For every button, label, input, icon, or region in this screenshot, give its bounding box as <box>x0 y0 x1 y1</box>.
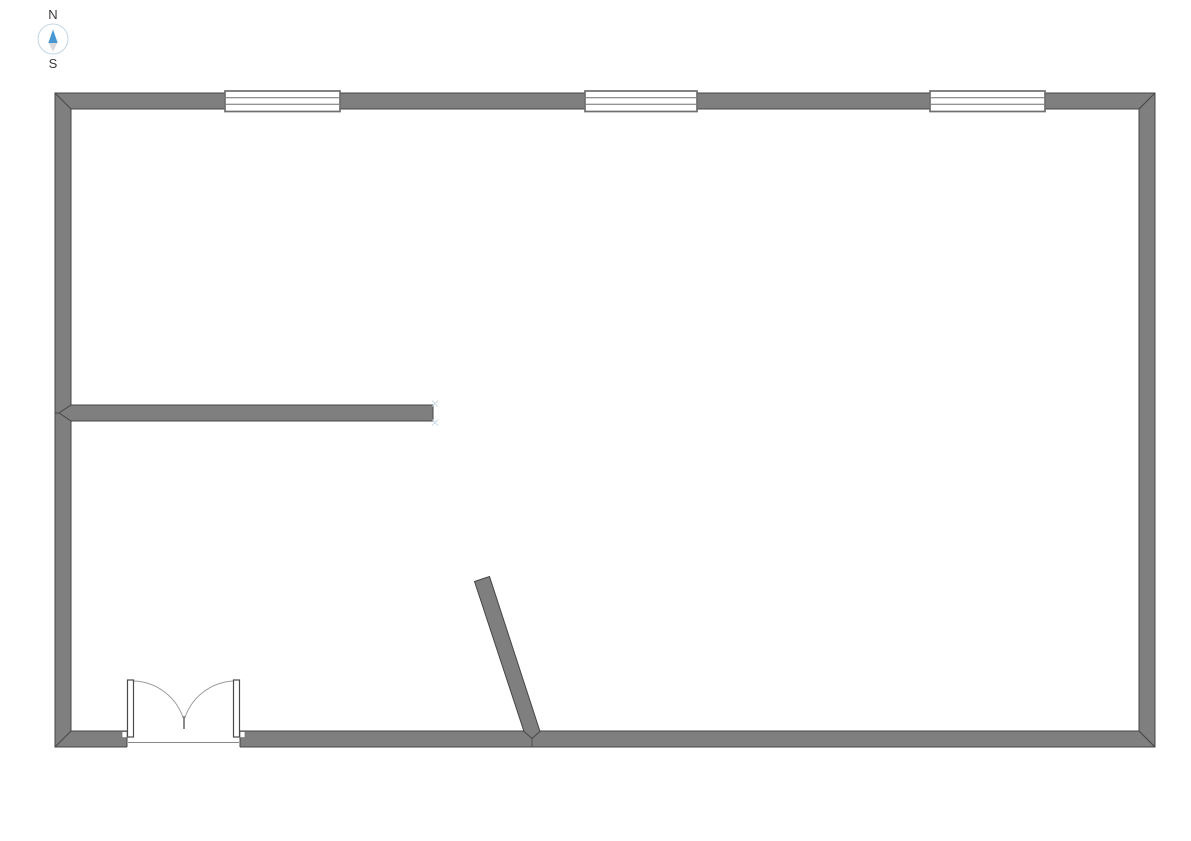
floor-plan-editor-canvas: N S <box>0 0 1191 841</box>
door-jamb-notch-left <box>122 732 127 738</box>
snap-marker-icon <box>432 401 438 407</box>
door-opening <box>127 730 240 748</box>
door-jamb-notch-right <box>240 732 245 738</box>
window-1[interactable] <box>225 91 340 112</box>
window-3[interactable] <box>930 91 1045 112</box>
door-swing-arc-right <box>185 681 234 719</box>
interior-wall[interactable] <box>59 405 433 421</box>
angled-wall[interactable] <box>475 577 541 739</box>
snap-marker-icon <box>432 420 438 426</box>
door-leaf-left[interactable] <box>128 680 134 737</box>
door-leaf-right[interactable] <box>234 680 240 737</box>
door-swing-arc-left <box>134 681 184 719</box>
window-2[interactable] <box>585 91 697 112</box>
floor-plan-svg <box>0 0 1191 841</box>
